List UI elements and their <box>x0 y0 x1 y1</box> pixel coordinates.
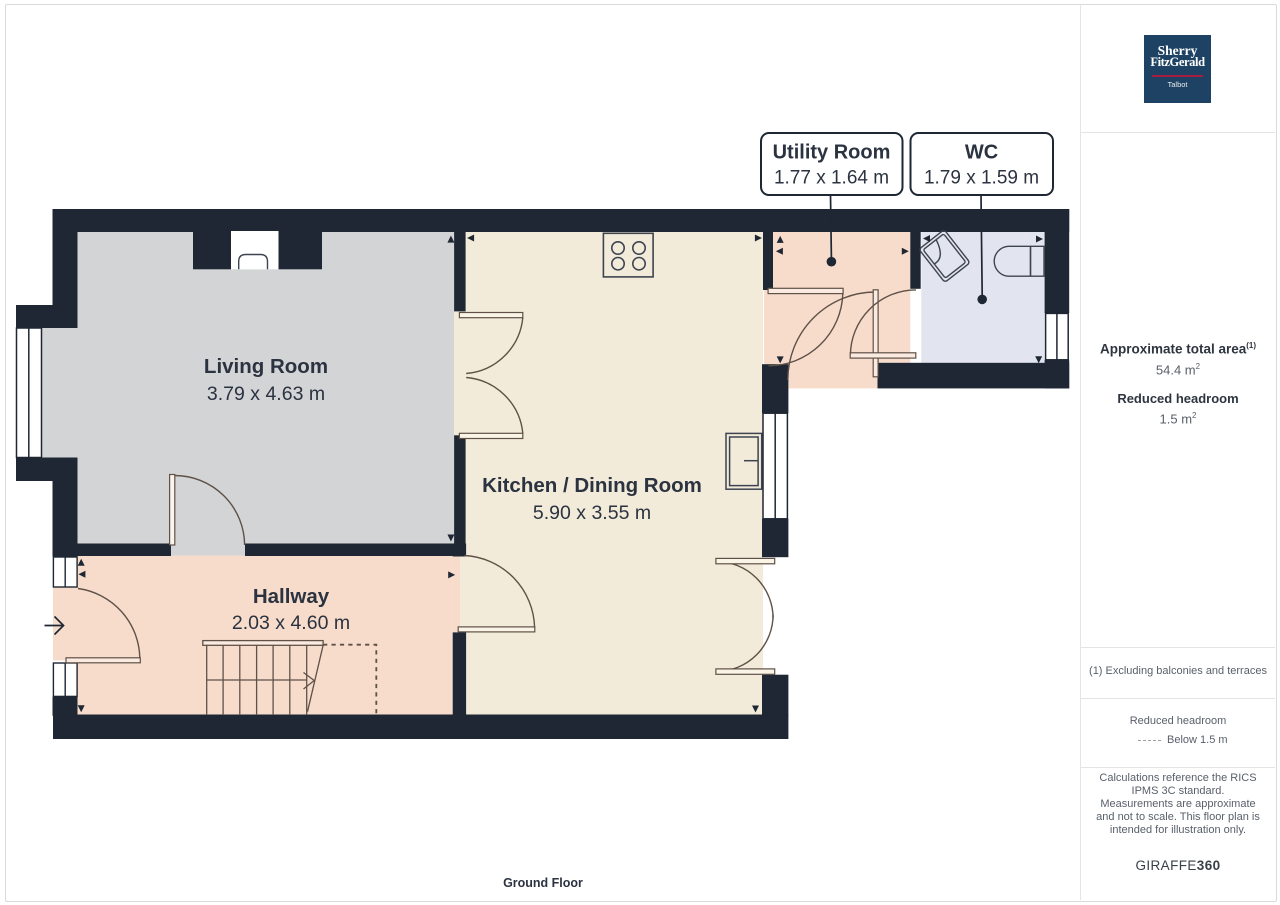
svg-text:Living Room: Living Room <box>204 355 328 378</box>
svg-text:WC: WC <box>965 142 998 164</box>
svg-text:Kitchen / Dining Room: Kitchen / Dining Room <box>482 474 702 497</box>
svg-text:1.77 x 1.64 m: 1.77 x 1.64 m <box>774 168 889 189</box>
svg-text:5.90 x 3.55 m: 5.90 x 3.55 m <box>533 502 651 524</box>
svg-text:3.79 x 4.63 m: 3.79 x 4.63 m <box>207 383 325 405</box>
svg-text:Hallway: Hallway <box>253 585 330 608</box>
svg-text:2.03 x 4.60 m: 2.03 x 4.60 m <box>232 612 350 634</box>
svg-text:Utility Room: Utility Room <box>773 142 891 164</box>
svg-text:1.79 x 1.59 m: 1.79 x 1.59 m <box>924 168 1039 189</box>
